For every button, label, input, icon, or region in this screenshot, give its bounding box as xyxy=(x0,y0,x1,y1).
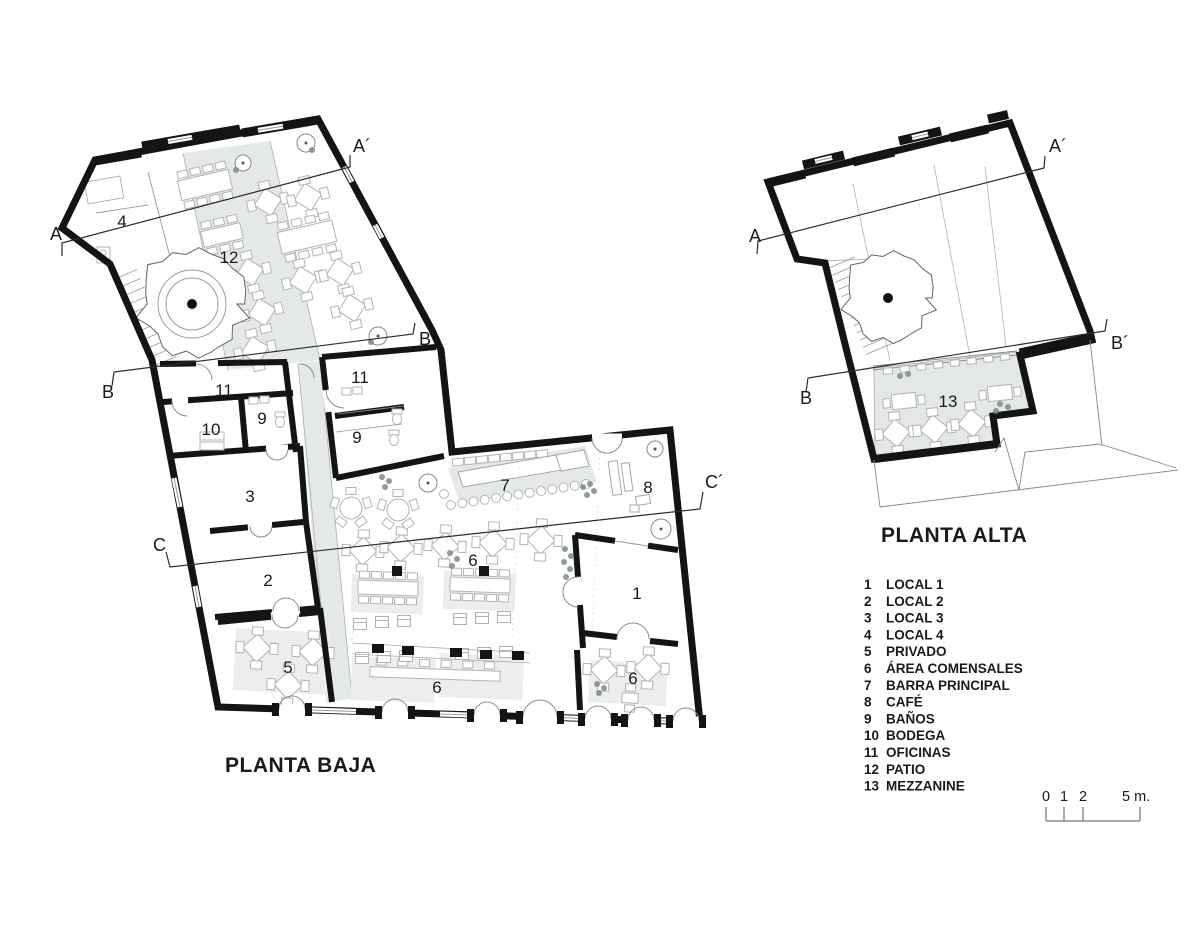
upper-floor-title: PLANTA ALTA xyxy=(881,524,1027,547)
armchair xyxy=(378,652,391,663)
room-number-label: 9 xyxy=(352,428,361,447)
legend-item-number: 11 xyxy=(864,745,879,760)
room-number-label: 11 xyxy=(215,381,233,400)
room-number-label: 2 xyxy=(263,571,272,590)
legend-item-number: 6 xyxy=(864,661,872,676)
plant-dot xyxy=(594,681,600,687)
room-number-label: 6 xyxy=(468,551,477,570)
legend-item-number: 2 xyxy=(864,594,872,609)
plant-dot xyxy=(997,401,1003,407)
room-number-label: 6 xyxy=(628,669,637,688)
room-number-label: 13 xyxy=(939,392,958,411)
plant-dot xyxy=(562,546,568,552)
legend-item-label: LOCAL 4 xyxy=(886,627,944,642)
legend-item-number: 5 xyxy=(864,644,872,659)
plant-dot xyxy=(580,484,586,490)
plant-dot xyxy=(454,556,460,562)
plant-dot xyxy=(897,373,903,379)
legend-item-number: 3 xyxy=(864,611,872,626)
plant-dot xyxy=(567,566,573,572)
plant-dot xyxy=(449,563,455,569)
plant-dot xyxy=(584,492,590,498)
legend-item-number: 4 xyxy=(864,627,872,642)
tree-trunk xyxy=(883,293,893,303)
tree-trunk xyxy=(187,299,197,309)
legend-item-number: 7 xyxy=(864,678,872,693)
scale-bar: 0125 m. xyxy=(1042,789,1150,821)
scale-tick-label: 0 xyxy=(1042,789,1050,805)
legend-item-label: LOCAL 2 xyxy=(886,594,944,609)
section-marker-label: C´ xyxy=(705,472,724,492)
room-number-label: 4 xyxy=(117,212,126,231)
plant-dot xyxy=(382,484,388,490)
plant-dot xyxy=(233,167,239,173)
legend-item-number: 12 xyxy=(864,762,879,777)
section-marker-label: A xyxy=(50,224,62,244)
room-number-label: 12 xyxy=(220,248,239,267)
plant-dot xyxy=(601,685,607,691)
plant-dot xyxy=(587,481,593,487)
legend-item-number: 9 xyxy=(864,711,872,726)
legend-item-label: OFICINAS xyxy=(886,745,951,760)
section-marker-label: A´ xyxy=(353,136,371,156)
legend-item-label: LOCAL 3 xyxy=(886,611,944,626)
legend-item-label: ÁREA COMENSALES xyxy=(886,661,1023,676)
armchair xyxy=(376,617,389,628)
section-marker-label: B xyxy=(800,388,812,408)
armchair xyxy=(354,619,367,630)
plant-dot xyxy=(905,371,911,377)
legend-item-number: 8 xyxy=(864,695,872,710)
legend-item-label: LOCAL 1 xyxy=(886,577,944,592)
section-marker-label: A xyxy=(749,226,761,246)
armchair xyxy=(498,612,511,623)
ground-floor-plan xyxy=(62,119,706,728)
plant-dot xyxy=(568,553,574,559)
section-marker-label: B´ xyxy=(1111,333,1129,353)
plant-dot xyxy=(1005,404,1011,410)
section-marker-label: B´ xyxy=(419,329,437,349)
section-marker-label: C xyxy=(153,535,166,555)
ground-floor-title: PLANTA BAJA xyxy=(225,754,376,777)
scale-tick-label: 1 xyxy=(1060,789,1068,805)
upper-floor-plan xyxy=(768,115,1178,508)
armchair xyxy=(476,613,489,624)
room-number-label: 9 xyxy=(257,409,266,428)
floor-plan-sheet: PLANTA BAJA PLANTA ALTA AA´BB´CC´ AA´BB´… xyxy=(0,0,1200,927)
plant-dot xyxy=(447,550,453,556)
legend-item-label: BODEGA xyxy=(886,728,946,743)
room-number-label: 1 xyxy=(632,584,641,603)
armchair xyxy=(398,616,411,627)
plant-dot xyxy=(309,147,315,153)
legend-item-number: 10 xyxy=(864,728,879,743)
break-mark xyxy=(995,438,1100,490)
plant-dot xyxy=(563,574,569,580)
legend-item-label: PRIVADO xyxy=(886,644,947,659)
armchair xyxy=(454,614,467,625)
plant-dot xyxy=(591,488,597,494)
legend-item-label: BAÑOS xyxy=(886,711,935,726)
plant-dot xyxy=(386,478,392,484)
upper-floor-room-labels: 13 xyxy=(939,392,958,411)
legend-item-label: BARRA PRINCIPAL xyxy=(886,678,1010,693)
room-number-label: 8 xyxy=(643,478,652,497)
legend-item-label: CAFÉ xyxy=(886,695,923,710)
room-number-label: 11 xyxy=(351,368,369,387)
plant-dot xyxy=(993,408,999,414)
room-number-label: 10 xyxy=(202,420,221,439)
legend-item-number: 13 xyxy=(864,779,880,794)
legend-item-label: PATIO xyxy=(886,762,925,777)
plant-dot xyxy=(596,690,602,696)
section-marker-label: A´ xyxy=(1049,136,1067,156)
plant-dot xyxy=(379,474,385,480)
plant-dot xyxy=(561,559,567,565)
legend-item-number: 1 xyxy=(864,577,872,592)
legend: 1LOCAL 12LOCAL 23LOCAL 34LOCAL 45PRIVADO… xyxy=(864,577,1023,794)
architectural-drawing: PLANTA BAJA PLANTA ALTA AA´BB´CC´ AA´BB´… xyxy=(0,0,1200,927)
room-number-label: 7 xyxy=(500,476,509,495)
room-number-label: 6 xyxy=(432,678,441,697)
scale-tick-label: 2 xyxy=(1079,789,1087,805)
room-number-label: 5 xyxy=(283,658,292,677)
section-marker-label: B xyxy=(102,382,114,402)
long-table xyxy=(357,571,418,605)
scale-tick-label: 5 m. xyxy=(1122,789,1150,805)
legend-item-label: MEZZANINE xyxy=(886,779,965,794)
room-number-label: 3 xyxy=(245,487,254,506)
